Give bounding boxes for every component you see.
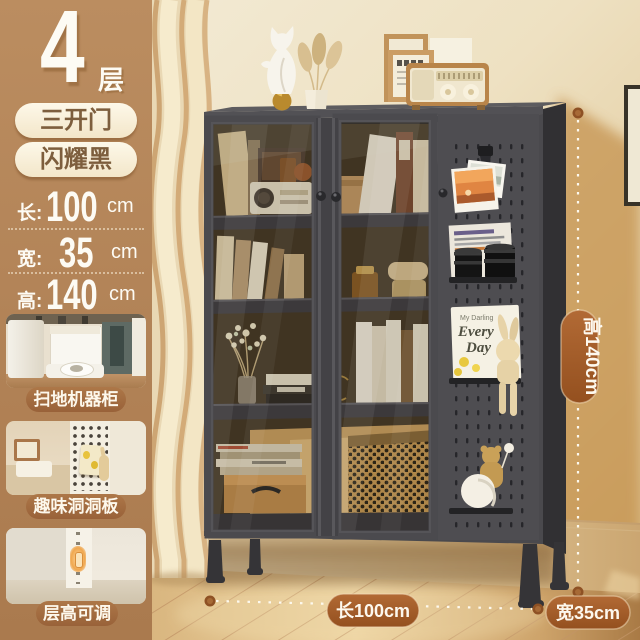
- svg-text:My Darling: My Darling: [460, 315, 494, 322]
- svg-text:宽35cm: 宽35cm: [556, 602, 620, 623]
- svg-text:高140cm: 高140cm: [581, 317, 604, 395]
- svg-text:Every: Every: [457, 324, 494, 340]
- svg-text:长100cm: 长100cm: [336, 601, 410, 621]
- svg-text:Day: Day: [465, 340, 491, 356]
